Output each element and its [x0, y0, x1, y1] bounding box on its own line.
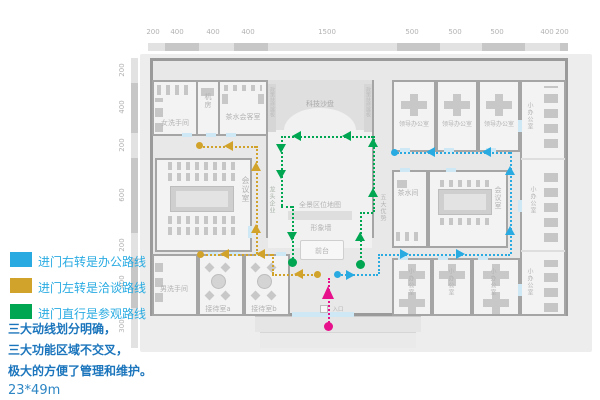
- arrow-left-icon: [342, 131, 351, 141]
- route-line: [378, 254, 380, 274]
- arrow-right-icon: [400, 249, 409, 259]
- arrow-up-icon: [355, 232, 365, 241]
- arrow-left-icon: [224, 141, 233, 151]
- route-line: [338, 274, 378, 276]
- arrow-up-icon: [368, 188, 378, 197]
- arrow-right-icon: [346, 270, 355, 280]
- route-dot: [288, 258, 297, 267]
- arrow-down-icon: [276, 170, 286, 179]
- arrow-up-icon: [505, 226, 515, 235]
- arrow-up-icon: [322, 286, 334, 299]
- route-dot: [324, 322, 333, 331]
- route-line: [373, 136, 375, 212]
- route-dot: [196, 142, 203, 149]
- arrow-up-icon: [251, 224, 261, 233]
- route-overlay: [0, 0, 600, 400]
- route-line: [397, 152, 510, 154]
- arrow-up-icon: [251, 162, 261, 171]
- route-line: [281, 206, 292, 208]
- route-dot: [197, 251, 204, 258]
- arrow-left-icon: [294, 269, 303, 279]
- arrow-down-icon: [276, 144, 286, 153]
- route-line: [360, 212, 373, 214]
- arrow-left-icon: [482, 147, 491, 157]
- arrow-up-icon: [505, 166, 515, 175]
- route-dot: [391, 149, 398, 156]
- arrow-left-icon: [292, 131, 301, 141]
- arrow-left-icon: [426, 147, 435, 157]
- route-line: [378, 254, 510, 256]
- arrow-right-icon: [456, 249, 465, 259]
- route-line: [272, 254, 274, 274]
- floorplan-diagram: 200 400 400 400 1500 500 500 500 400 200…: [0, 0, 600, 400]
- arrow-up-icon: [368, 138, 378, 147]
- arrow-down-icon: [287, 232, 297, 241]
- arrow-left-icon: [220, 249, 229, 259]
